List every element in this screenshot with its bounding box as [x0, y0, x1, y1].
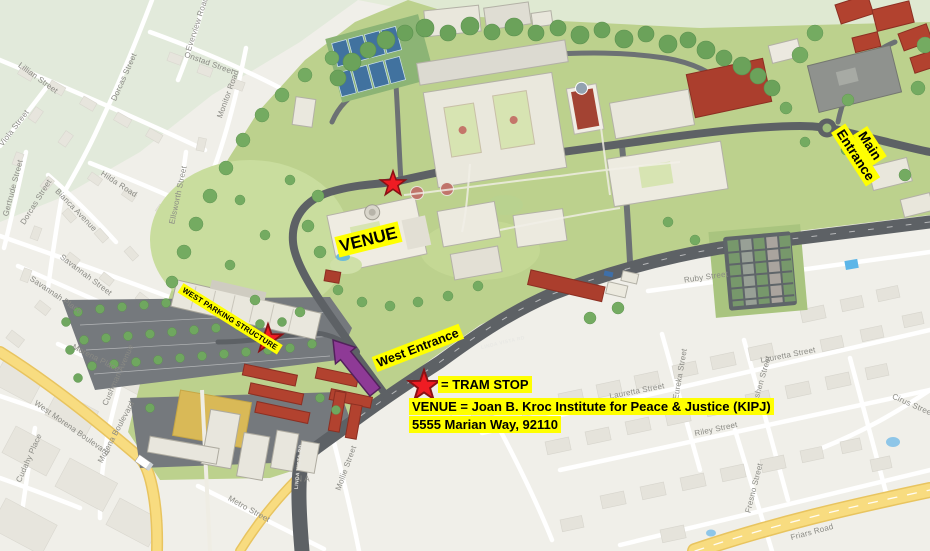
housing-complex: [723, 231, 797, 311]
tram-stop-legend: = TRAM STOP: [438, 377, 532, 393]
pond-small: [706, 530, 716, 537]
venue-info: VENUE = Joan B. Kroc Institute for Peace…: [409, 398, 774, 434]
campus-map: Lillian Street Dorcas Street Everview Ro…: [0, 0, 930, 551]
map-artwork: [0, 0, 930, 551]
pond: [886, 437, 900, 447]
